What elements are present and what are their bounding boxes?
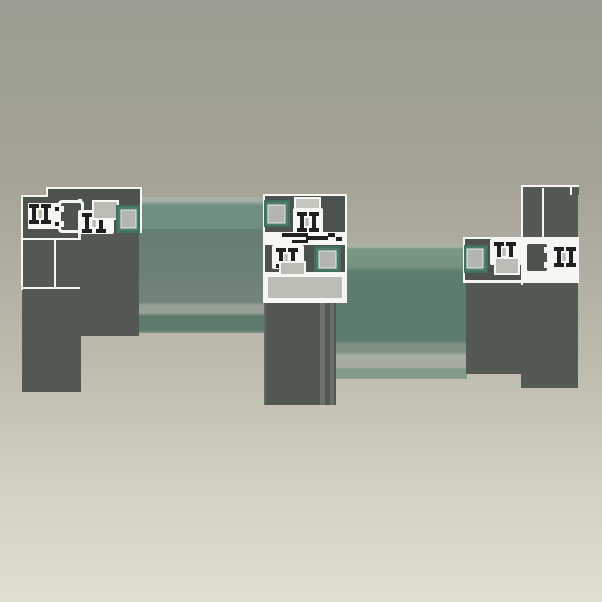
glazing-pocket-right [464, 245, 488, 273]
lower-glazing-block [279, 261, 306, 276]
right-stile-extrusion [466, 275, 521, 374]
frame-hook-profile-right [524, 241, 554, 274]
lower-glazing-pocket [314, 246, 341, 272]
section-central-interlock [262, 192, 348, 304]
glass-unit-right [336, 243, 467, 379]
upper-glazing-pocket [264, 200, 290, 227]
cad-viewport[interactable] [0, 0, 602, 602]
interlock-extrusion [264, 302, 336, 405]
jamb-gasket-pair-right [550, 244, 579, 271]
section-bottom-line [463, 280, 579, 283]
glazing-block [92, 200, 119, 220]
glazing-block-right [494, 257, 520, 275]
section-right-stile-and-jamb [462, 183, 602, 287]
track-block [265, 274, 345, 301]
section-left-jamb-and-stile [20, 184, 142, 246]
glazing-pocket [116, 205, 140, 233]
glass-unit-left [137, 197, 271, 333]
left-jamb-channel-line [54, 240, 56, 288]
left-jamb-section-line [23, 287, 80, 289]
upper-gasket-pair [293, 208, 323, 234]
